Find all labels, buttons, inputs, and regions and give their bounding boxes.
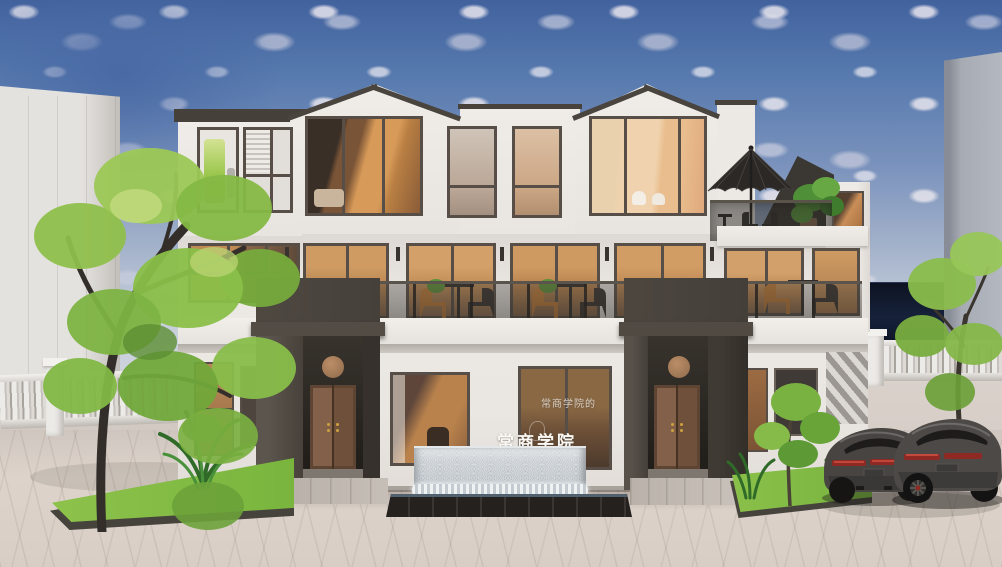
fountain-basin: [386, 494, 632, 517]
gable-left-window: [305, 116, 423, 216]
door-seam: [332, 385, 334, 469]
wall-downlight: [500, 247, 504, 261]
window-mullion: [382, 119, 385, 213]
chair-hint: [632, 191, 646, 205]
door-seam: [676, 385, 678, 469]
portico-cap: [624, 278, 748, 326]
wall-downlight: [605, 247, 609, 261]
portico-cornice: [619, 322, 753, 336]
gable-right-window: [589, 116, 707, 216]
door-handles-gold: [671, 423, 674, 426]
sports-car-right: [888, 396, 1002, 514]
chair-hint: [652, 193, 665, 205]
door-medallion: [322, 356, 344, 378]
portico-pillar: [363, 336, 380, 490]
right-mid-roof-edge: [715, 100, 757, 105]
window-mullion: [515, 185, 559, 188]
wall-downlight: [710, 247, 714, 261]
mid-roof-edge: [458, 104, 582, 109]
window-mullion: [678, 119, 681, 213]
sofa-hint: [314, 189, 344, 207]
wooden-double-door: [654, 385, 700, 469]
wall-downlight: [396, 247, 400, 261]
portico-pillar: [624, 336, 648, 490]
glass-door-text: 常商学院的: [541, 395, 596, 410]
window-mullion: [624, 119, 627, 213]
right-parapet: [717, 226, 868, 246]
curtain-hint: [393, 375, 405, 463]
mid-window-1: [447, 126, 497, 218]
door-medallion: [668, 356, 690, 378]
mid-window-2: [512, 126, 562, 218]
door-handles-gold: [327, 423, 330, 426]
architectural-rendering: 常商学院的 常商学院: [0, 0, 1002, 567]
tree-left-large: [18, 86, 318, 532]
window-mullion: [450, 185, 494, 188]
